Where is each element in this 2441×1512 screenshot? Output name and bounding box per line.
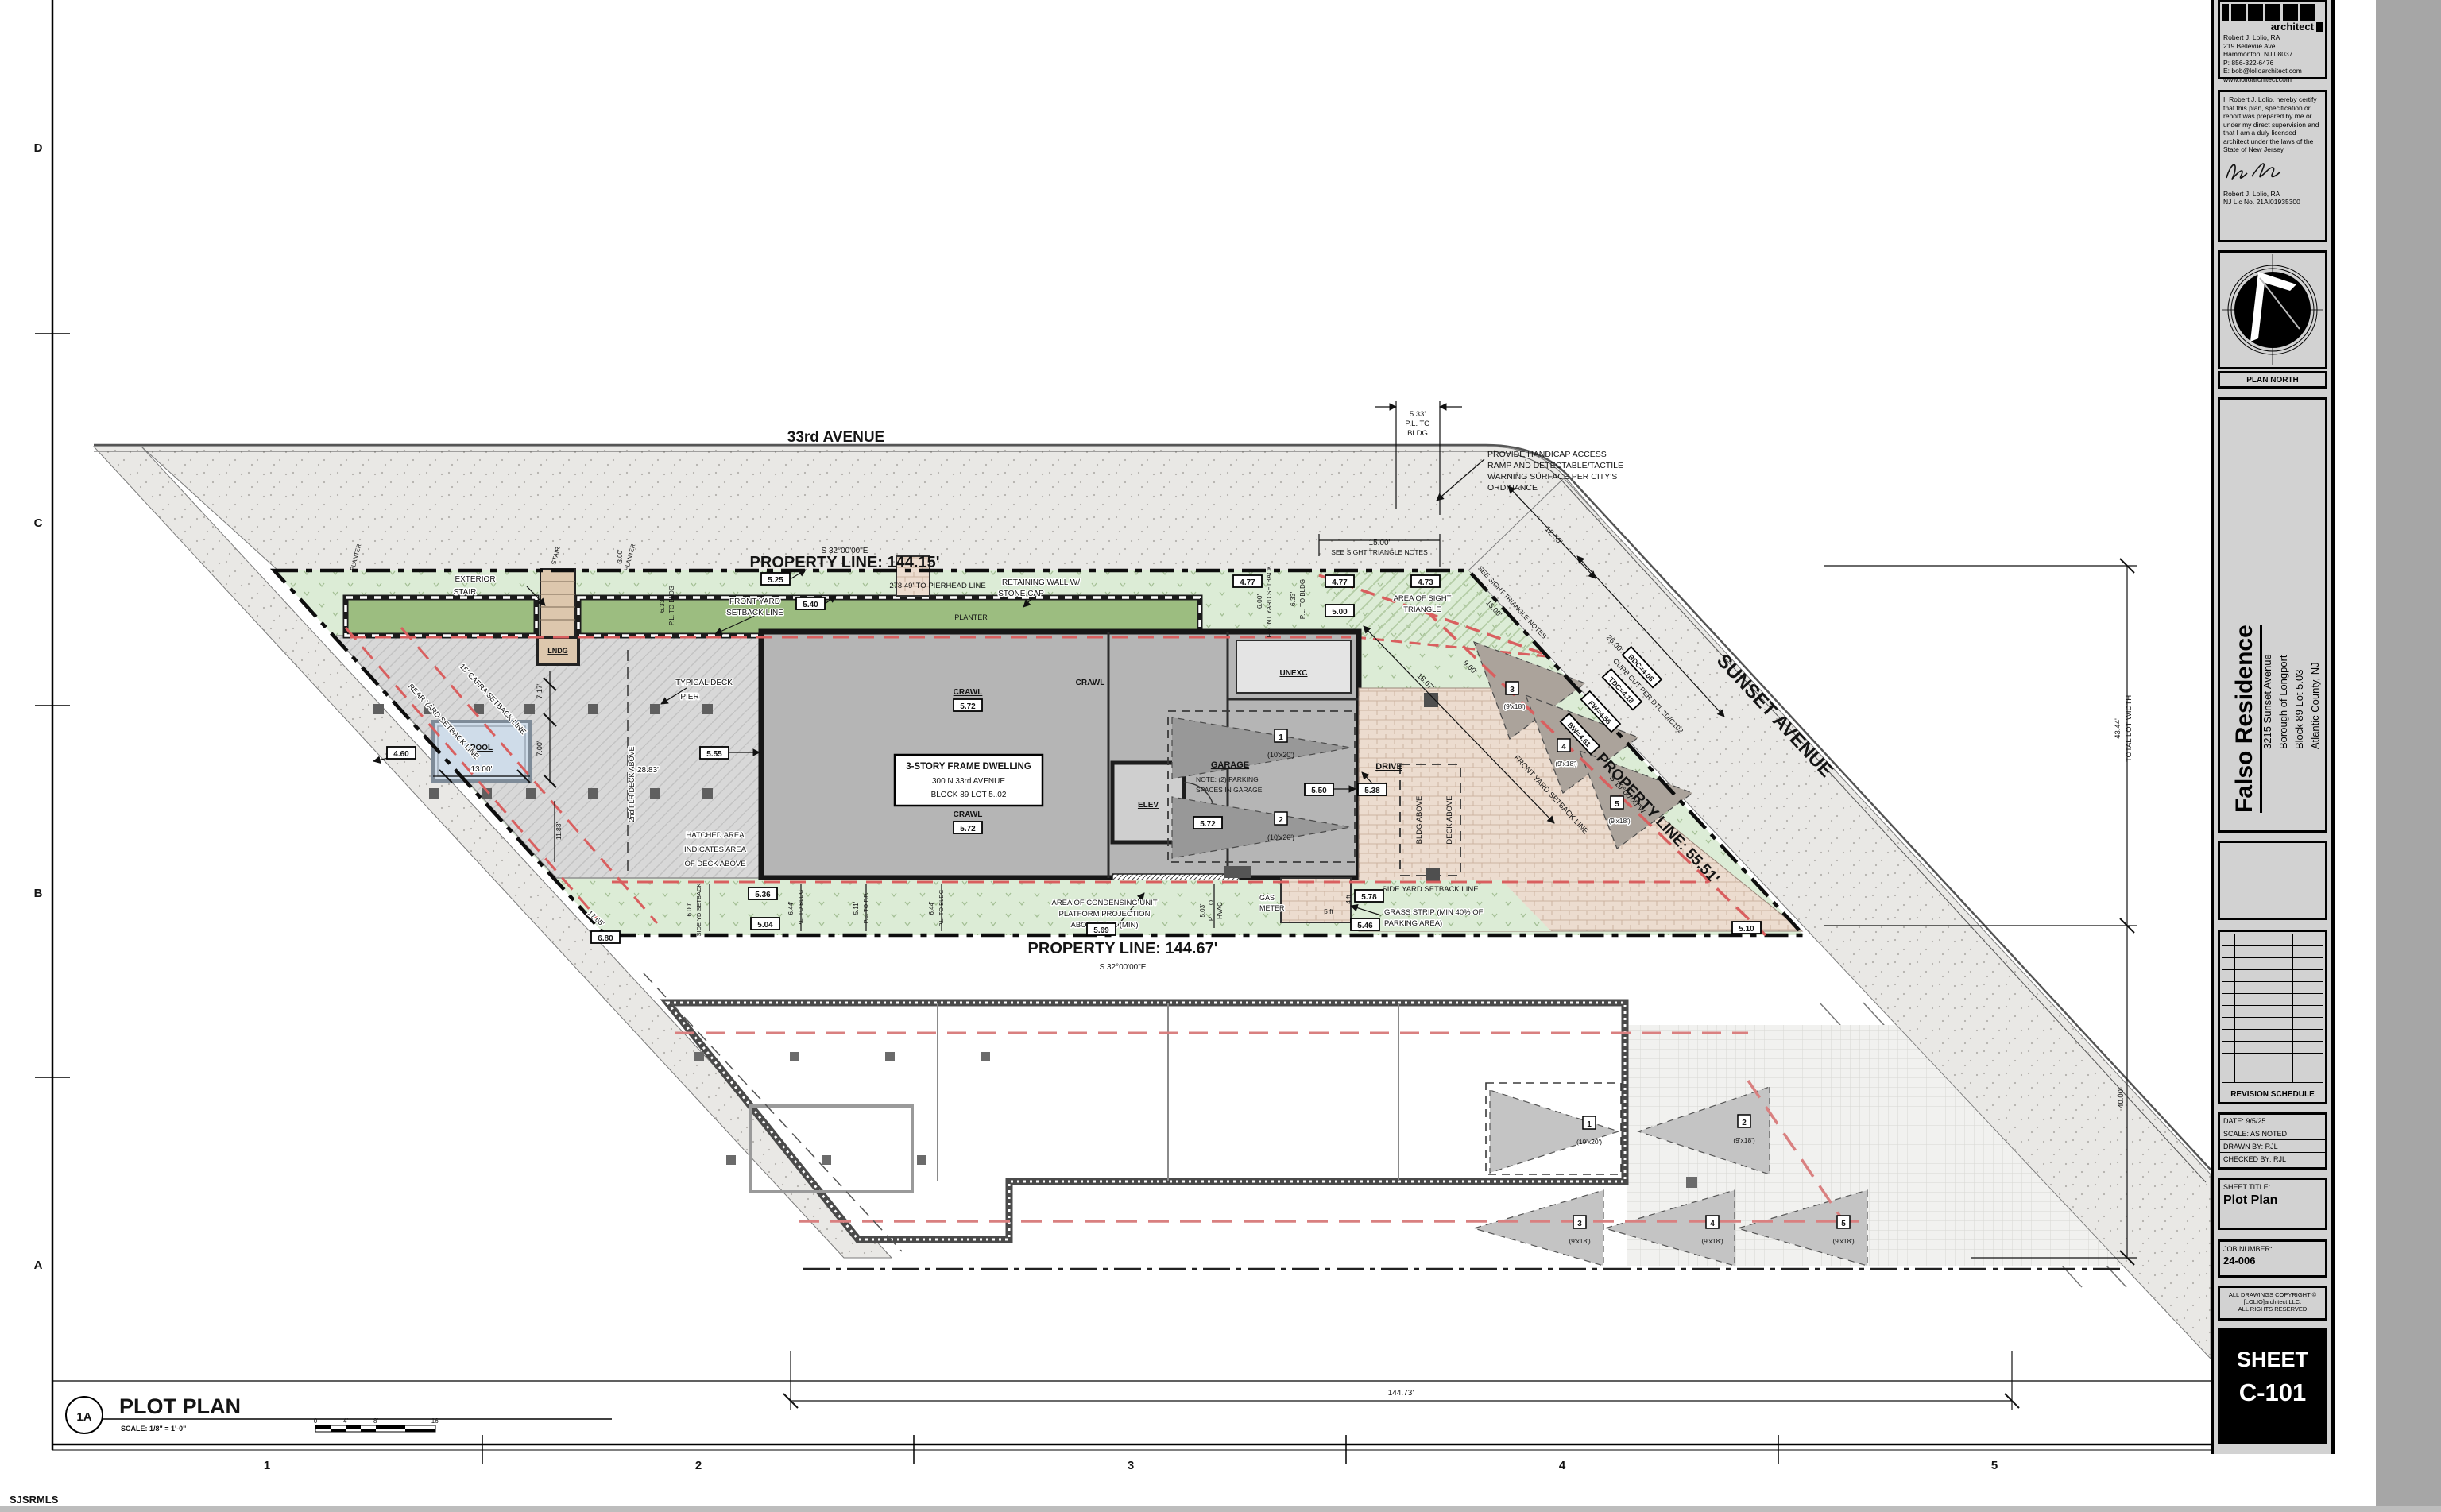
job-number-block: JOB NUMBER: 24-006 [2218, 1239, 2327, 1278]
revision-label: REVISION SCHEDULE [2220, 1090, 2325, 1099]
desktop-margin-right [2376, 0, 2441, 1512]
cert-line-1: I, Robert J. Lolio, hereby certify [2223, 95, 2322, 104]
label-hatched-3: OF DECK ABOVE [684, 860, 745, 868]
copyright-2: [LOLIO]architect LLC. [2220, 1298, 2325, 1305]
label-exterior-stair-1: EXTERIOR [455, 575, 495, 584]
label-600b: FRONT YARD SETBACK [1266, 565, 1273, 637]
spot-500: 5.00 [1332, 608, 1348, 617]
label-handicap-4: ORDINANCE [1487, 483, 1538, 493]
scalebar-0: 0 [314, 1417, 318, 1425]
spot-540: 5.40 [803, 601, 818, 609]
label-unexc: UNEXC [1279, 669, 1307, 678]
label-33rd-avenue: 33rd AVENUE [787, 429, 884, 446]
info-scale: SCALE: AS NOTED [2220, 1127, 2325, 1140]
spot-680: 6.80 [598, 934, 613, 943]
label-pier-1: TYPICAL DECK [675, 679, 733, 687]
sheet-title-block: SHEET TITLE: Plot Plan [2218, 1178, 2327, 1230]
ghost-stall-4: 4 [1710, 1220, 1715, 1228]
label-gas: GAS [1259, 894, 1275, 902]
label-1183: 11.83' [555, 822, 563, 840]
project-block: Falso Residence 3215 Sunset Avenue Borou… [2218, 397, 2327, 833]
gas-meter [1224, 866, 1251, 878]
ghost-stall-3: 3 [1577, 1220, 1582, 1228]
label-2883: 28.83' [637, 766, 659, 775]
project-addr-1: 3215 Sunset Avenue [2261, 654, 2273, 749]
sheet-number-block: SHEET C-101 [2218, 1328, 2327, 1444]
ghost-stall-2: 2 [1742, 1119, 1747, 1127]
firm-email: E: bob@lolioarchitect.com [2223, 67, 2322, 75]
label-retwall-1: RETAINING WALL W/ [1002, 578, 1080, 587]
label-garage-note-1: NOTE: (2) PARKING [1196, 775, 1259, 783]
dwelling-title: 3-STORY FRAME DWELLING [906, 762, 1031, 771]
revision-table [2222, 934, 2323, 1083]
spot-572b: 5.72 [960, 825, 976, 833]
cert-line-2: that this plan, specification or [2223, 104, 2322, 113]
grid-number-4: 4 [1559, 1459, 1566, 1472]
label-511: 5.11' [853, 901, 860, 915]
scalebar-8: 8' [373, 1417, 378, 1425]
plan-north-label: PLAN NORTH [2218, 371, 2327, 389]
ghost-stall-5-size: (9'x18') [1832, 1237, 1855, 1245]
firm-name: Robert J. Lolio, RA [2223, 33, 2322, 42]
job-number-label: JOB NUMBER: [2223, 1245, 2322, 1253]
stall-5-size: (9'x18') [1608, 817, 1631, 825]
viewport-scale: SCALE: 1/8" = 1'-0" [121, 1425, 186, 1433]
grid-number-3: 3 [1128, 1459, 1134, 1472]
stall-5: 5 [1615, 800, 1619, 809]
spot-536: 5.36 [755, 891, 771, 899]
label-crawl-3: CRAWL [1076, 679, 1105, 687]
plot-plan-drawing: 33rd AVENUE S 32°00'00"E PROPERTY LINE: … [0, 0, 2441, 1512]
label-1300: 13.00' [471, 765, 493, 774]
label-meter: METER [1259, 904, 1285, 912]
ghost-stall-2-size: (9'x18') [1733, 1136, 1755, 1144]
label-sightnote-top: SEE SIGHT TRIANGLE NOTES [1331, 548, 1428, 556]
firm-street: 219 Bellevue Ave [2223, 42, 2322, 51]
label-633b-left: P.L. TO BLDG [668, 586, 675, 625]
label-hvac-2: P.L. TO [1208, 900, 1215, 921]
label-grass-2: PARKING AREA) [1384, 919, 1442, 928]
lolio-logo [2222, 4, 2323, 21]
label-garage: GARAGE [1211, 760, 1249, 770]
label-lndg: LNDG [547, 647, 568, 655]
label-area-sight-1: AREA OF SIGHT [1394, 594, 1452, 603]
certification-block: I, Robert J. Lolio, hereby certify that … [2218, 90, 2327, 242]
dwelling-block: BLOCK 89 LOT 5..02 [931, 791, 1007, 799]
label-pl-top: PROPERTY LINE: 144.15' [750, 554, 940, 571]
ghost-stall-3-size: (9'x18') [1569, 1237, 1591, 1245]
label-600: 6.00' [1255, 594, 1263, 609]
viewport-title: 1A PLOT PLAN SCALE: 1/8" = 1'-0" 0 4' 8'… [66, 1394, 612, 1433]
job-number: 24-006 [2223, 1255, 2322, 1266]
label-hatched-2: INDICATES AREA [684, 845, 747, 854]
label-deck-above: DECK ABOVE [1445, 795, 1454, 844]
label-644a-b: P.L. TO BLDG [797, 889, 804, 926]
ghost-stall-1: 1 [1587, 1120, 1592, 1129]
scalebar-4: 4' [343, 1417, 348, 1425]
cert-name: Robert J. Lolio, RA [2223, 190, 2322, 199]
copyright-3: ALL RIGHTS RESERVED [2220, 1305, 2325, 1313]
spot-473: 4.73 [1418, 578, 1433, 587]
signature [2220, 154, 2322, 186]
grid-number-1: 1 [264, 1459, 270, 1472]
label-633b-right: P.L. TO BLDG [1299, 579, 1306, 619]
label-sideyd-1: 6.00' [686, 903, 693, 917]
label-exterior-stair-2: STAIR [454, 588, 477, 597]
info-checked: CHECKED BY: RJL [2220, 1153, 2325, 1165]
label-hatched-1: HATCHED AREA [686, 831, 745, 840]
spot-477a: 4.77 [1240, 578, 1255, 587]
info-block: DATE: 9/5/25 SCALE: AS NOTED DRAWN BY: R… [2218, 1112, 2327, 1170]
cert-line-6: architect under the laws of the [2223, 137, 2322, 146]
grid-number-5: 5 [1991, 1459, 1998, 1472]
project-addr-4: Atlantic County, NJ [2309, 662, 2321, 749]
spot-555: 5.55 [706, 750, 722, 759]
label-stall2-size: (10'x20') [1267, 833, 1294, 841]
dwelling [761, 632, 1359, 888]
ghost-stall-5: 5 [1841, 1220, 1846, 1228]
label-633-right: 6.33' [1289, 592, 1297, 607]
info-drawn: DRAWN BY: RJL [2220, 1140, 2325, 1153]
label-drive: DRIVE [1375, 762, 1402, 771]
spot-538: 5.38 [1364, 787, 1380, 795]
ghost-stall-1-size: (10'x20') [1576, 1138, 1602, 1146]
spot-504: 5.04 [757, 921, 773, 930]
label-retwall-2: STONE CAP [998, 590, 1044, 598]
sheet-number: C-101 [2218, 1379, 2327, 1407]
label-sideyard: SIDE YARD SETBACK LINE [1382, 885, 1478, 894]
label-front-yard-2: SETBACK LINE [726, 609, 783, 617]
label-grass-1: GRASS STRIP (MIN 40% OF [1384, 908, 1484, 917]
label-4344: 43.44' [2114, 718, 2122, 739]
label-bldg-above: BLDG ABOVE [1415, 796, 1424, 845]
dwelling-addr: 300 N 33rd AVENUE [932, 777, 1005, 786]
label-5ft: 5 ft [1324, 907, 1333, 915]
spot-510: 5.10 [1739, 925, 1754, 934]
spot-550: 5.50 [1311, 787, 1327, 795]
label-front-yard-1: FRONT YARD [729, 597, 780, 606]
revision-block: REVISION SCHEDULE [2218, 930, 2327, 1104]
firm-phone: P: 856-322-6476 [2223, 59, 2322, 68]
copyright-block: ALL DRAWINGS COPYRIGHT © [LOLIO]architec… [2218, 1286, 2327, 1321]
spot-525: 5.25 [768, 576, 783, 585]
label-700: 7.00' [536, 741, 544, 756]
grid-letter-c: C [34, 516, 43, 530]
stall-4-size: (9'x18') [1555, 760, 1577, 768]
cert-line-5: that I am a duly licensed [2223, 129, 2322, 137]
project-addr-2: Borough of Longport [2277, 655, 2289, 749]
label-planter-right: PLANTER [954, 613, 988, 621]
desktop-margin-bottom [0, 1506, 2441, 1512]
label-1500-top: 15.00' [1369, 539, 1391, 547]
viewport-name: PLOT PLAN [119, 1394, 241, 1418]
logo-architect-text: architect [2220, 21, 2325, 32]
label-stall1-size: (10'x20') [1267, 751, 1294, 759]
info-date: DATE: 9/5/25 [2220, 1115, 2325, 1127]
label-crawl-1: CRAWL [954, 688, 983, 697]
stall-4: 4 [1561, 743, 1566, 752]
spot-569: 5.69 [1093, 926, 1109, 935]
title-block: architect Robert J. Lolio, RA 219 Bellev… [2211, 0, 2335, 1454]
sheet-title: Plot Plan [2223, 1193, 2322, 1208]
watermark: SJSRMLS [10, 1494, 59, 1506]
label-pl-bottom: PROPERTY LINE: 144.67' [1028, 940, 1218, 957]
label-511-b: P.L. TO F.P. [862, 893, 869, 924]
grid-letter-b: B [34, 887, 43, 900]
stall-3: 3 [1510, 686, 1515, 694]
spot-572a: 5.72 [960, 702, 976, 711]
spare-block [2218, 841, 2327, 920]
viewport-id: 1A [76, 1410, 91, 1424]
label-717: 7.17' [536, 683, 544, 699]
label-533c: BLDG [1407, 429, 1428, 438]
north-arrow-icon [2220, 253, 2325, 367]
label-garage-note-2: SPACES IN GARAGE [1196, 786, 1263, 794]
cert-license: NJ Lic No. 21AI01935300 [2223, 198, 2322, 207]
label-crawl-2: CRAWL [954, 810, 983, 819]
cert-line-3: report was prepared by me or [2223, 112, 2322, 121]
project-addr-3: Block 89 Lot 5.03 [2293, 670, 2305, 749]
project-name: Falso Residence [2231, 625, 2262, 813]
label-533b: P.L. TO [1405, 420, 1429, 428]
spot-572c: 5.72 [1200, 820, 1216, 829]
spot-477b: 4.77 [1332, 578, 1348, 587]
unexc-room [1236, 640, 1351, 693]
label-elev: ELEV [1138, 801, 1159, 810]
label-644b: 6.44' [928, 901, 935, 915]
scalebar-16: 16' [431, 1417, 440, 1425]
label-handicap-2: RAMP AND DETECTABLE/TACTILE [1487, 461, 1623, 470]
label-handicap-1: PROVIDE HANDICAP ACCESS [1487, 450, 1607, 459]
label-4000: 40.00' [2117, 1088, 2126, 1108]
stall-2: 2 [1279, 816, 1283, 825]
firm-city: Hammonton, NJ 08037 [2223, 50, 2322, 59]
label-tlw: TOTAL LOT WIDTH [2125, 695, 2133, 762]
label-hvac-3: HVAC [1217, 902, 1224, 919]
label-pier-2: PIER [680, 693, 698, 702]
label-4ft: 4 ft [1345, 895, 1352, 904]
spot-460: 4.60 [393, 750, 409, 759]
label-644b-b: P.L. TO BLDG [938, 889, 945, 926]
label-633-left: 6.33' [658, 598, 666, 613]
sheet-c101: 33rd AVENUE S 32°00'00"E PROPERTY LINE: … [0, 0, 2441, 1512]
dwelling-id: 3-STORY FRAME DWELLING 300 N 33rd AVENUE… [895, 755, 1043, 806]
ghost-stall-4-size: (9'x18') [1701, 1237, 1723, 1245]
label-14473: 144.73' [1388, 1389, 1414, 1398]
copyright-1: ALL DRAWINGS COPYRIGHT © [2220, 1291, 2325, 1298]
label-cond-1: AREA OF CONDENSING UNIT [1051, 899, 1157, 907]
stall-1: 1 [1279, 733, 1283, 742]
sheet-word: SHEET [2218, 1348, 2327, 1372]
grid-number-2: 2 [695, 1459, 702, 1472]
stall-3-size: (9'x18') [1503, 702, 1526, 710]
label-644a: 6.44' [787, 901, 795, 915]
cert-line-7: State of New Jersey. [2223, 145, 2322, 154]
label-533: 5.33' [1410, 410, 1426, 419]
firm-block: architect Robert J. Lolio, RA 219 Bellev… [2218, 0, 2327, 79]
label-sideyd-2: SIDE YD SETBACK [695, 884, 702, 937]
plan-north-block [2218, 250, 2327, 369]
label-deck2: 2nd FLR DECK ABOVE [628, 746, 636, 822]
grid-letter-a: A [34, 1259, 43, 1272]
label-area-sight-2: TRIANGLE [1403, 605, 1441, 614]
spot-578: 5.78 [1361, 893, 1377, 902]
label-pierhead: 278.49' TO PIERHEAD LINE [889, 582, 985, 590]
firm-web: www.lolioarchitect.com [2223, 75, 2322, 84]
label-cond-2: PLATFORM PROJECTION [1059, 910, 1151, 918]
label-planter-dim: 3.00' [617, 549, 624, 563]
spot-546: 5.46 [1357, 922, 1373, 930]
grid-letter-d: D [34, 141, 43, 155]
label-handicap-3: WARNING SURFACE PER CITY'S [1487, 472, 1617, 481]
label-pl-bottom-bearing: S 32°00'00"E [1100, 963, 1147, 972]
cert-line-4: under my direct supervision and [2223, 121, 2322, 130]
sheet-title-label: SHEET TITLE: [2223, 1183, 2322, 1191]
label-hvac-1: 5.03' [1199, 903, 1206, 918]
